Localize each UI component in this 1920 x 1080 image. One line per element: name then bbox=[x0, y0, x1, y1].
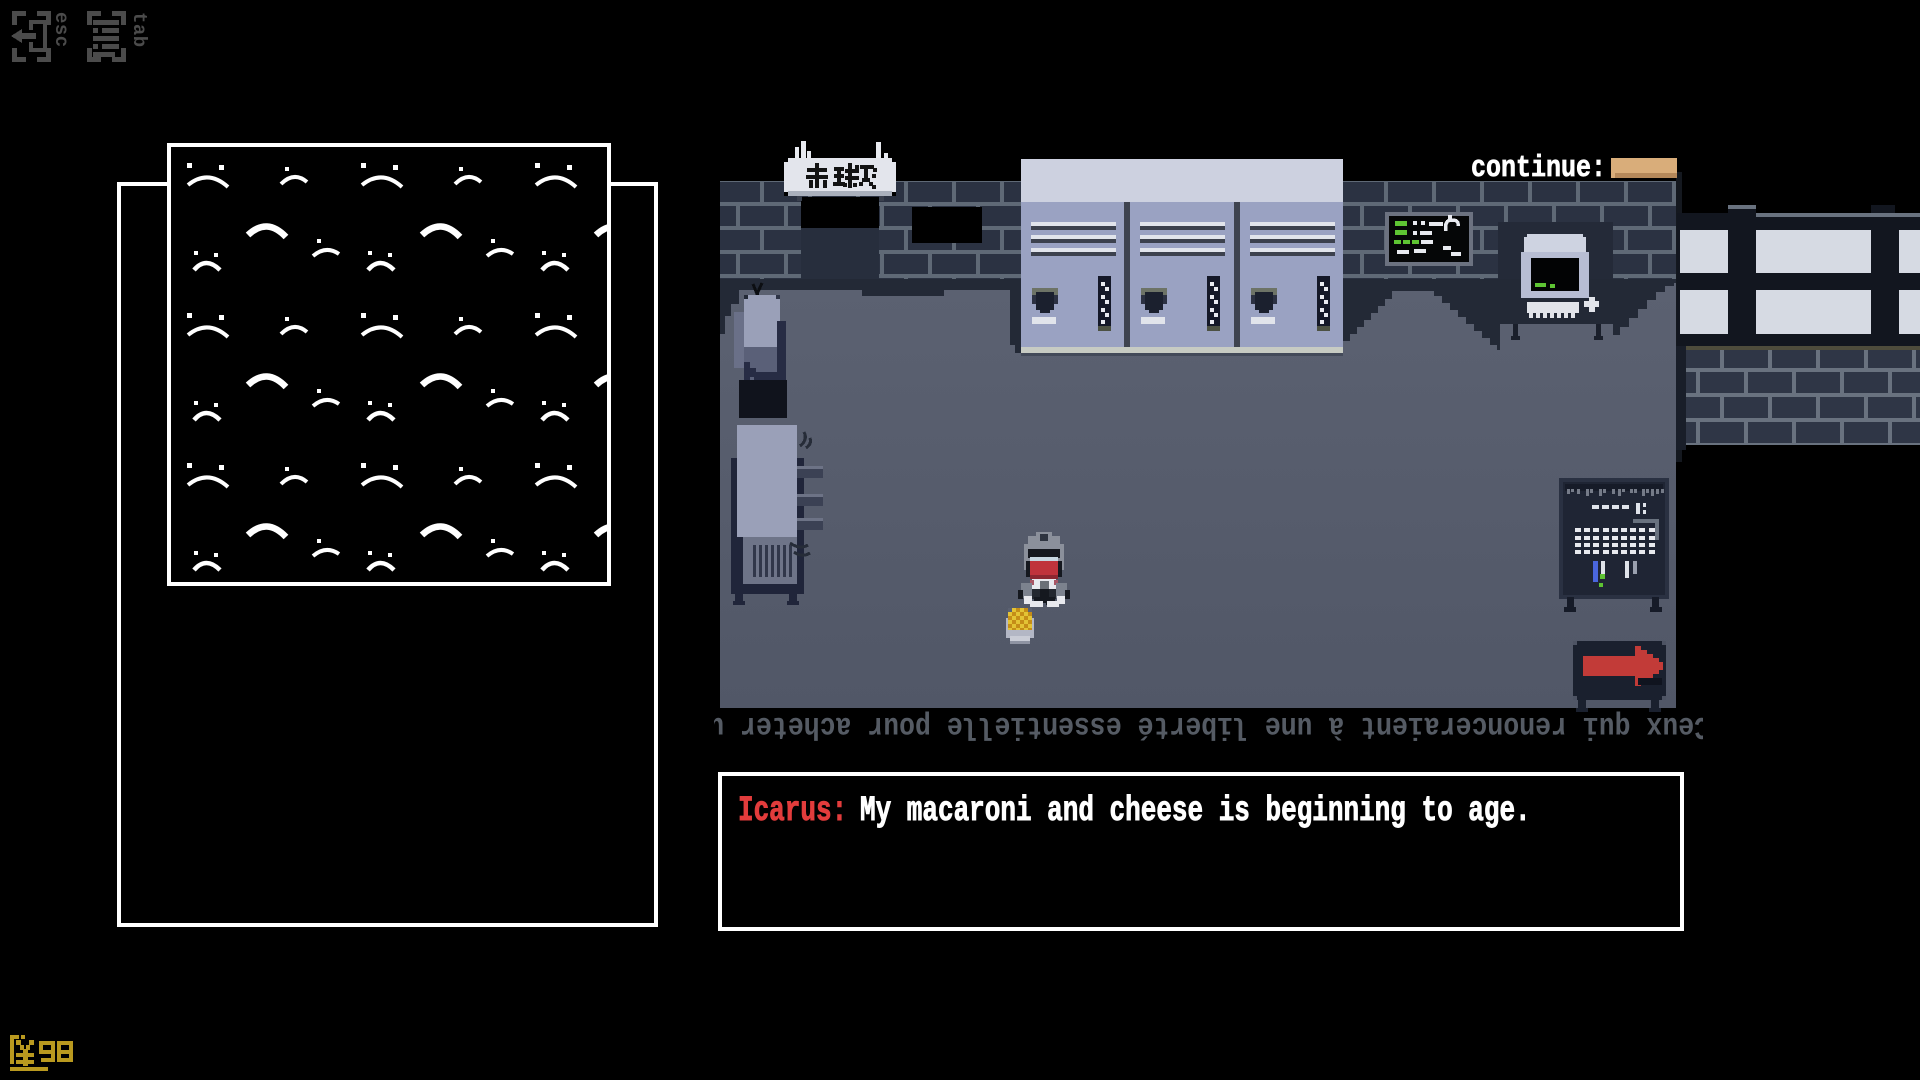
svg-text:My macaroni and cheese is begi: My macaroni and cheese is beginning to a… bbox=[860, 792, 1531, 832]
svg-text:Icarus:: Icarus: bbox=[738, 792, 847, 832]
svg-text:Ceux qui renonceraient à une l: Ceux qui renonceraient à une liberté ess… bbox=[692, 708, 1710, 744]
svg-text:continue:: continue: bbox=[1471, 152, 1606, 186]
svg-text:tab: tab bbox=[128, 12, 150, 48]
svg-text:esc: esc bbox=[50, 12, 72, 48]
